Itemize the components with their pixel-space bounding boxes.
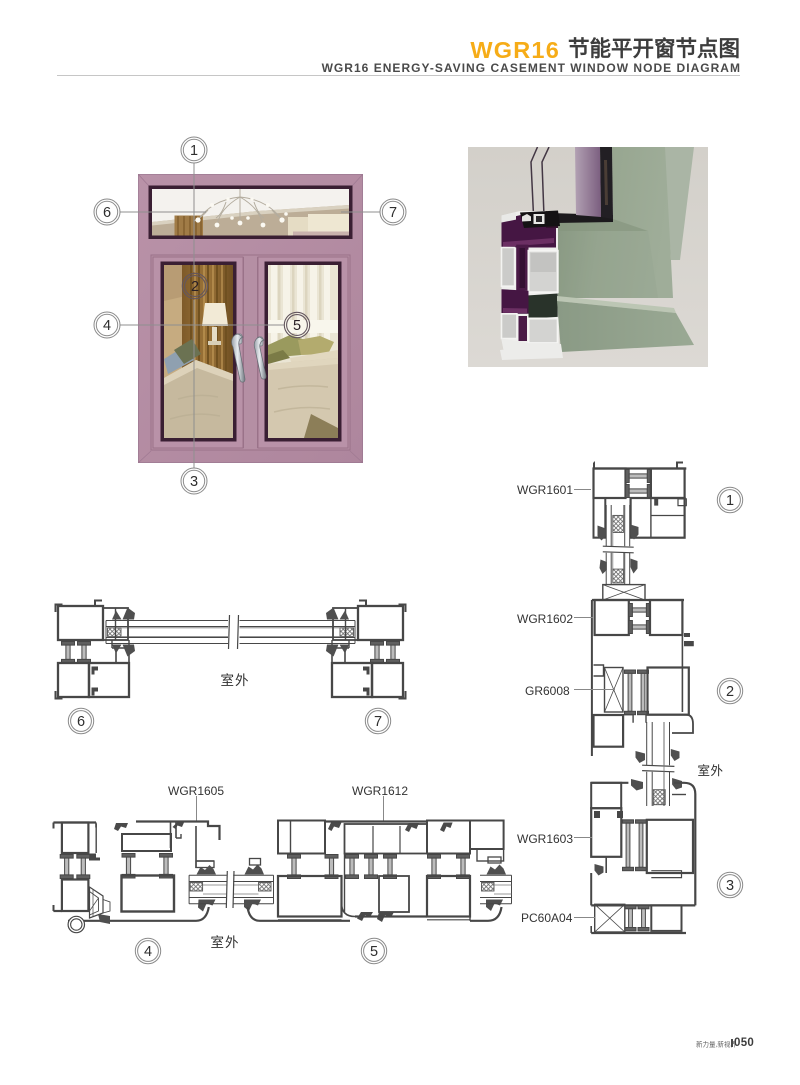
svg-text:1: 1 xyxy=(190,143,198,159)
svg-text:1: 1 xyxy=(726,493,734,509)
svg-text:3: 3 xyxy=(726,878,734,894)
svg-text:3: 3 xyxy=(190,474,198,490)
svg-text:6: 6 xyxy=(77,714,85,730)
svg-text:4: 4 xyxy=(103,318,111,334)
svg-text:4: 4 xyxy=(144,944,152,960)
svg-text:5: 5 xyxy=(293,318,301,334)
svg-text:2: 2 xyxy=(191,279,199,295)
svg-text:5: 5 xyxy=(370,944,378,960)
svg-text:7: 7 xyxy=(389,205,397,221)
svg-text:6: 6 xyxy=(103,205,111,221)
svg-text:2: 2 xyxy=(726,684,734,700)
svg-text:7: 7 xyxy=(374,714,382,730)
